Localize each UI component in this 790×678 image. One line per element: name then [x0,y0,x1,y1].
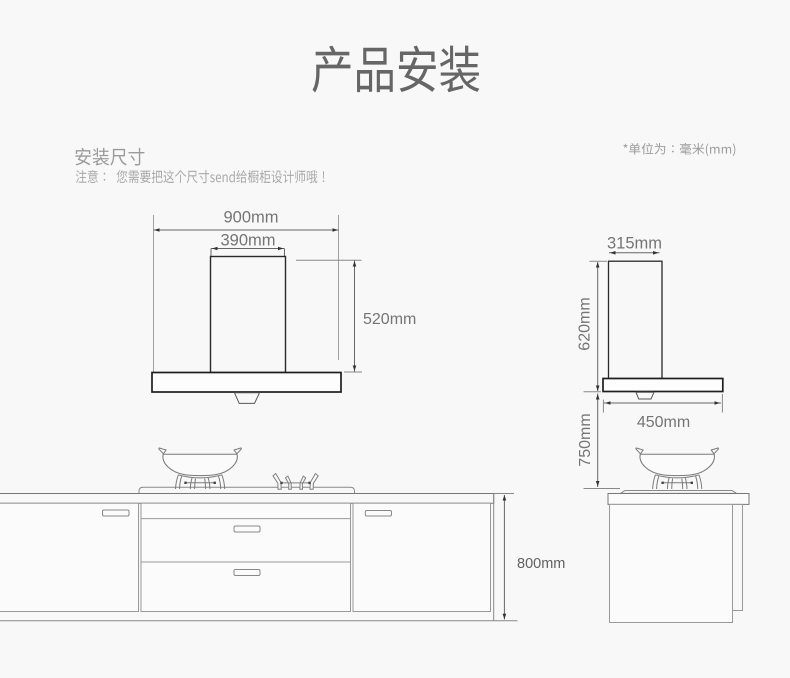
svg-text:315mm: 315mm [607,235,662,253]
svg-text:390mm: 390mm [220,232,275,250]
svg-text:900mm: 900mm [223,209,278,227]
svg-text:800mm: 800mm [517,556,565,572]
svg-text:750mm: 750mm [577,413,594,466]
svg-text:620mm: 620mm [577,297,594,350]
svg-text:450mm: 450mm [637,414,690,431]
svg-text:520mm: 520mm [363,311,416,328]
